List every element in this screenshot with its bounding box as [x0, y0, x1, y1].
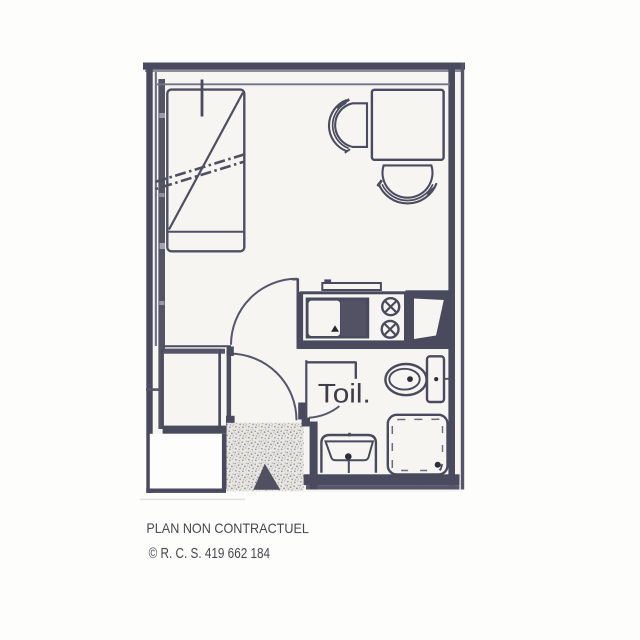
svg-text:PLAN NON CONTRACTUEL: PLAN NON CONTRACTUEL	[146, 521, 309, 536]
svg-text:© R. C. S. 419 662 184: © R. C. S. 419 662 184	[149, 545, 271, 562]
svg-text:Toil.: Toil.	[318, 379, 371, 409]
